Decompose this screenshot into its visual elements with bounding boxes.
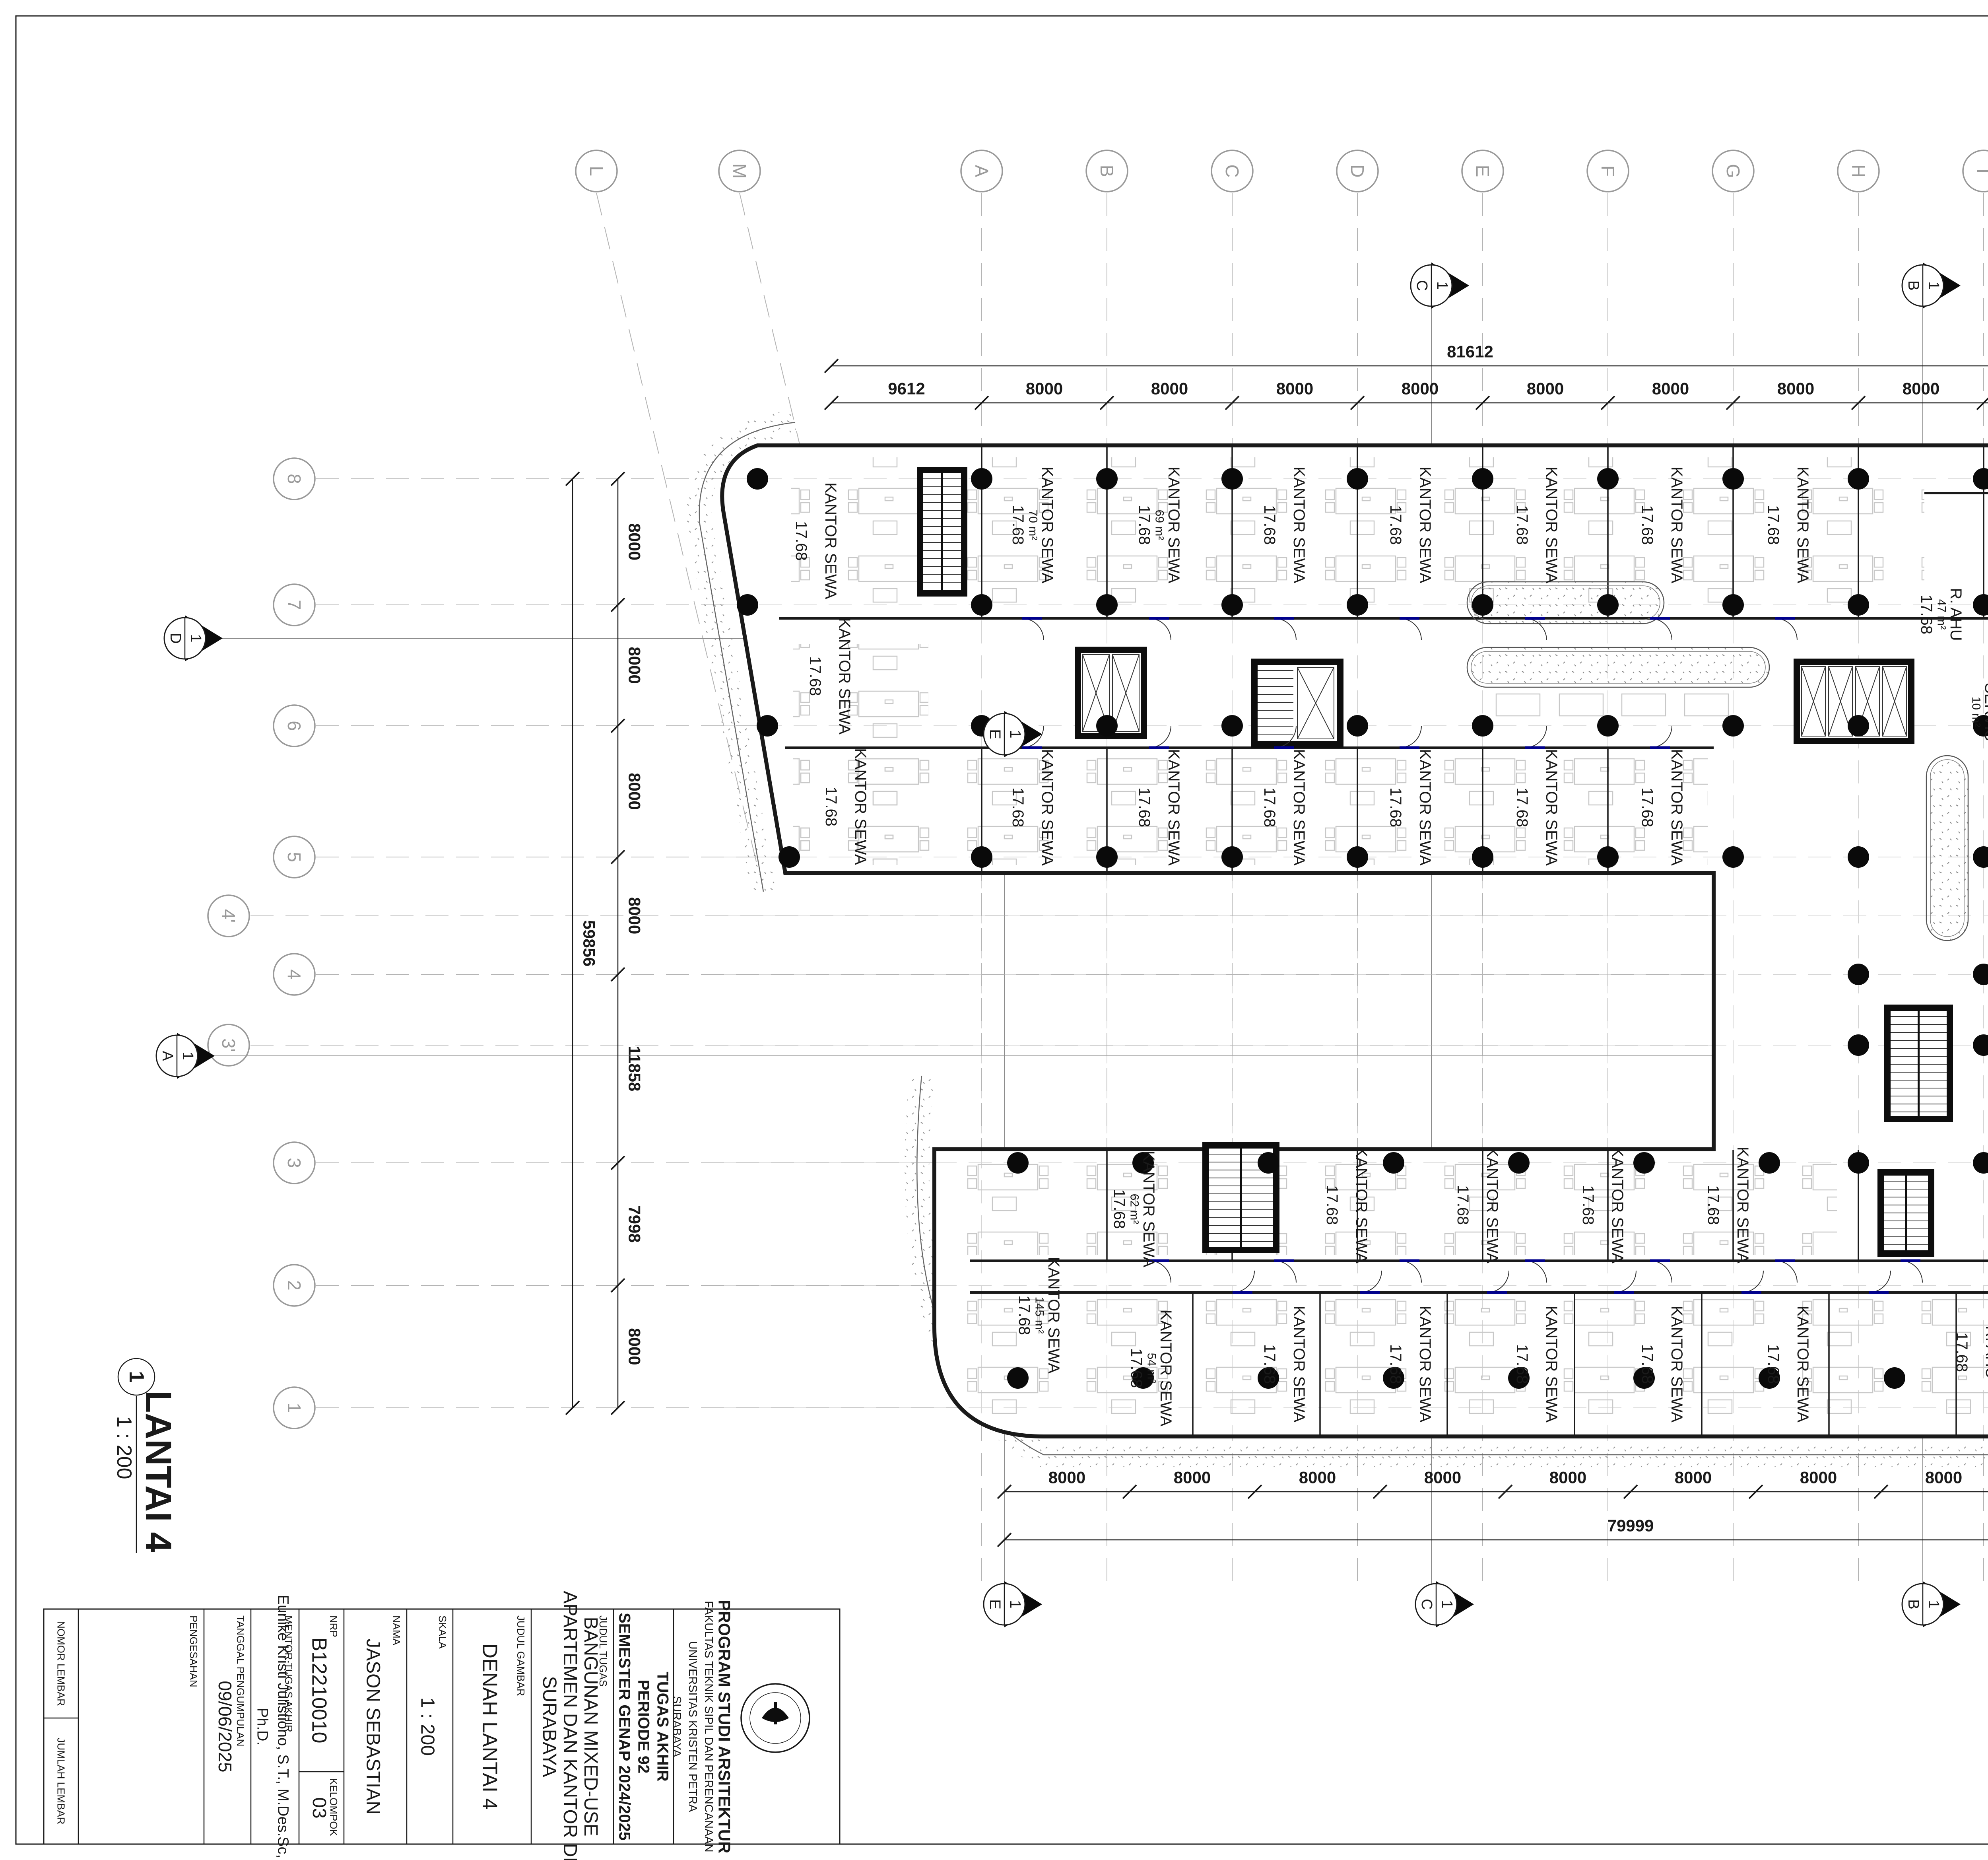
grid-letter: H [1848, 164, 1869, 177]
tb-value: TUGAS AKHIR [654, 1671, 672, 1781]
column [747, 468, 768, 490]
room-name: KANTOR SEWA [1734, 1147, 1751, 1263]
column [1472, 594, 1493, 616]
section-letter: C [1418, 1599, 1435, 1609]
room-level: 17.68 [1639, 505, 1656, 545]
dim-value: 7998 [625, 1205, 644, 1242]
room-level: 17.68 [1015, 1295, 1033, 1335]
dim-value: 8000 [625, 1328, 644, 1365]
door-threshold [1022, 617, 1042, 620]
column [737, 594, 758, 616]
room-level: 17.68 [1579, 1185, 1597, 1225]
column [1258, 1152, 1279, 1174]
column [1597, 715, 1619, 737]
column [1221, 715, 1243, 737]
room-level: 17.68 [792, 521, 810, 561]
column [1472, 468, 1493, 490]
drawing-sheet: LMABCDEFGHIJK87654'43'321KANTOR SEWA17.6… [0, 0, 1988, 1860]
tb-value: SEMESTER GENAP 2024/2025 [616, 1613, 633, 1841]
section-letter: C [1413, 280, 1430, 291]
door-threshold [1487, 1291, 1507, 1294]
tb-label: JUMLAH LEMBAR [55, 1738, 67, 1824]
room-name: KANTOR SEWA [1609, 1147, 1626, 1263]
column [1347, 846, 1368, 868]
dim-value: 8000 [1026, 379, 1063, 398]
furniture-zone [962, 1296, 1988, 1428]
column [1722, 468, 1744, 490]
column [1884, 1367, 1905, 1389]
grid-letter: B [1097, 165, 1117, 177]
door-threshold [1741, 1291, 1761, 1294]
dim-value: 8000 [1299, 1468, 1336, 1487]
dim-value: 8000 [1800, 1468, 1837, 1487]
room-name: KANTOR SEWA [1543, 1306, 1560, 1423]
grid-number: 3' [218, 1038, 239, 1052]
room-level: 17.68 [1953, 1332, 1971, 1372]
room-name: KANTOR SEWA [1140, 1151, 1157, 1267]
room-name: KANTOR SEWA [1157, 1310, 1175, 1427]
planter [1467, 582, 1664, 624]
tb-label: NAMA [390, 1615, 402, 1646]
room-level: 17.68 [1513, 787, 1531, 827]
room-name: KANTOR SEWA [1794, 466, 1811, 583]
room-level: 17.68 [1513, 505, 1531, 545]
room-name: KANTOR SEWA [836, 618, 853, 735]
dim-value: 8000 [1675, 1468, 1712, 1487]
dim-value: 11858 [625, 1046, 644, 1091]
room-level: 17.68 [1454, 1185, 1472, 1225]
column [1096, 715, 1118, 737]
dim-value-overall: 79999 [1607, 1516, 1654, 1535]
column [1347, 468, 1368, 490]
tb-label: NRP [328, 1615, 340, 1637]
column [1597, 594, 1619, 616]
grid-number: 6 [284, 721, 305, 731]
room-level: 17.68 [1513, 1344, 1531, 1384]
door-threshold [1400, 617, 1419, 620]
grid-number: 4 [284, 969, 305, 980]
column [1508, 1152, 1530, 1174]
column [1722, 594, 1744, 616]
column [1848, 1152, 1869, 1174]
dim-value: 8000 [1527, 379, 1564, 398]
column [1472, 846, 1493, 868]
grid-letter: A [971, 165, 992, 177]
room-level: 17.68 [1261, 1344, 1278, 1384]
tb-institution: UNIVERSITAS KRISTEN PETRA [686, 1641, 699, 1812]
column [1597, 846, 1619, 868]
tb-value: Eunike Kristi Julistiono, S.T., M.Des.Sc… [275, 1595, 291, 1858]
room-level: 17.68 [1639, 787, 1656, 827]
column [1096, 594, 1118, 616]
tb-institution: SURABAYA [670, 1696, 683, 1757]
tb-value: 1 : 200 [417, 1697, 438, 1756]
room-name: KANTOR SEWA [1543, 749, 1560, 866]
section-letter: A [159, 1051, 176, 1061]
column [1383, 1152, 1404, 1174]
dim-value: 8000 [1276, 379, 1313, 398]
tb-value: SURABAYA [539, 1676, 560, 1777]
room-name: KANTOR SEWA [1416, 466, 1434, 583]
column [1848, 468, 1869, 490]
grid-number: 1 [284, 1403, 305, 1413]
room-name: KANTOR SEWA [1416, 1306, 1434, 1423]
column [1347, 715, 1368, 737]
room-name: KANTOR SEWA [1039, 749, 1056, 866]
drawing-number: 1 [125, 1371, 148, 1383]
tb-label: NOMOR LEMBAR [55, 1621, 67, 1706]
tb-value: 09/06/2025 [215, 1681, 235, 1772]
section-letter: D [167, 633, 184, 643]
column [1848, 594, 1869, 616]
section-number: 1 [187, 634, 204, 642]
room-name: KANTOR SEWA [1290, 749, 1308, 866]
dim-value: 8000 [625, 523, 644, 560]
furniture-zone [797, 754, 1708, 865]
room-name: KANTOR SEWA [1165, 466, 1182, 583]
room-name: KANTOR SEWA [1543, 466, 1560, 583]
column [1633, 1152, 1655, 1174]
room-area: 70 m² [1027, 510, 1040, 540]
section-letter: E [986, 1599, 1003, 1609]
tb-value: BANGUNAN MIXED-USE [580, 1617, 601, 1836]
section-number: 1 [1925, 281, 1942, 290]
tb-value: APARTEMEN DAN KANTOR DI [559, 1591, 580, 1860]
planter [1926, 756, 1968, 941]
section-number: 1 [1434, 281, 1450, 290]
floor-plan-canvas: LMABCDEFGHIJK87654'43'321KANTOR SEWA17.6… [0, 0, 1988, 1860]
door-threshold [1650, 1259, 1670, 1262]
column [1007, 1152, 1029, 1174]
section-number: 1 [179, 1051, 196, 1060]
sheet-border [16, 16, 1988, 1844]
tb-value: DENAH LANTAI 4 [478, 1643, 501, 1809]
column [971, 594, 992, 616]
column [1848, 715, 1869, 737]
room-level: 17.68 [822, 787, 840, 826]
grid-number: 4' [218, 909, 239, 923]
door-threshold [1901, 1259, 1920, 1262]
planter [1467, 647, 1769, 687]
grid-letter: G [1723, 164, 1743, 178]
room-area: 47 m² [1935, 599, 1948, 630]
column [971, 468, 992, 490]
column [1472, 715, 1493, 737]
column [1722, 715, 1744, 737]
room-level: 17.68 [1639, 1344, 1656, 1384]
section-number: 1 [1439, 1600, 1455, 1608]
room-level: 17.68 [1705, 1185, 1722, 1225]
room-level: 17.68 [1261, 505, 1278, 545]
column [1007, 1367, 1029, 1389]
room-level: 17.68 [1009, 787, 1027, 827]
column [1848, 964, 1869, 985]
column [757, 715, 778, 737]
room-level: 17.68 [1918, 595, 1935, 634]
room-name: KANTOR SEWA [1416, 749, 1434, 866]
room-level: 17.68 [806, 656, 824, 696]
grid-number: 3 [284, 1158, 305, 1168]
room-name: KANTOR SEWA [1290, 466, 1308, 583]
room-name: KANTOR SEWA [1165, 749, 1182, 866]
room-name: KANTOR SEWA [1290, 1306, 1308, 1423]
door-threshold [1274, 1259, 1294, 1262]
sheet-title-block: NOMOR LEMBARJUMLAH LEMBARPENGESAHANTANGG… [44, 1591, 840, 1860]
room-name: KANTOR SEWA [1353, 1147, 1370, 1263]
door-threshold [1869, 1291, 1889, 1294]
column [1848, 1034, 1869, 1056]
room-name: KANTOR SEWA [1668, 749, 1685, 866]
tb-label: PENGESAHAN [188, 1615, 200, 1687]
room-name: KANTOR SEWA [852, 748, 869, 865]
grid-number: 7 [284, 600, 305, 610]
dim-value: 8000 [1652, 379, 1689, 398]
section-letter: E [986, 729, 1003, 739]
room-name: R. AHU [1982, 1326, 1988, 1378]
tb-label: TANGGAL PENGUMPULAN [235, 1615, 247, 1746]
room-name: KANTOR SEWA [1039, 466, 1056, 583]
tb-value: 03 [309, 1797, 330, 1818]
dim-value: 8000 [1151, 379, 1188, 398]
door-threshold [1274, 617, 1294, 620]
grid-letter: E [1472, 165, 1493, 177]
drawing-scale: 1 : 200 [113, 1416, 136, 1479]
door-threshold [1233, 1291, 1252, 1294]
column [1096, 468, 1118, 490]
room-level: 17.68 [1110, 1189, 1128, 1229]
dim-value: 8000 [625, 647, 644, 684]
room-name: KANTOR SEWA [1794, 1306, 1811, 1423]
column [1722, 846, 1744, 868]
door-threshold [1614, 1291, 1634, 1294]
room-area: 10 m² [1970, 697, 1983, 727]
door-threshold [1525, 1259, 1545, 1262]
tb-value: PERIODE 92 [635, 1680, 652, 1774]
grid-letter: M [729, 163, 750, 179]
room-level: 17.68 [1387, 505, 1404, 545]
dim-value-overall: 81612 [1447, 342, 1493, 361]
door-threshold [1650, 746, 1670, 749]
column [971, 846, 992, 868]
tb-value: B12210010 [308, 1637, 331, 1743]
door-threshold [1149, 617, 1169, 620]
room-area: 54 m² [1145, 1353, 1158, 1384]
column [1096, 846, 1118, 868]
tb-label: SKALA [437, 1615, 448, 1649]
door-threshold [1525, 617, 1545, 620]
section-number: 1 [1007, 730, 1023, 738]
room-name: R. AHU [1947, 588, 1965, 641]
room-name: KANTOR SEWA [1483, 1147, 1501, 1263]
column [779, 846, 800, 868]
dim-value: 8000 [625, 897, 644, 934]
dim-value: 8000 [1174, 1468, 1211, 1487]
drawing-title-block: 1LANTAI 41 : 200 [113, 1359, 179, 1553]
drawing-title: LANTAI 4 [138, 1390, 179, 1552]
room-name: KANTOR SEWA [1668, 1306, 1685, 1423]
room-level: 17.68 [1128, 1348, 1145, 1388]
grid-number: 2 [284, 1280, 305, 1291]
tb-institution: FAKULTAS TEKNIK SIPIL DAN PERENCANAAN [702, 1601, 715, 1852]
column [1221, 846, 1243, 868]
dim-value: 8000 [1925, 1468, 1962, 1487]
grid-letter: L [586, 166, 607, 176]
room-area: 145 m² [1033, 1296, 1046, 1333]
dim-value: 9612 [888, 379, 925, 398]
room-area: 69 m² [1153, 510, 1166, 540]
section-letter: B [1905, 1599, 1922, 1609]
dim-value: 8000 [1903, 379, 1939, 398]
dim-value: 8000 [1048, 1468, 1085, 1487]
tb-label: JUDUL GAMBAR [515, 1615, 527, 1696]
dim-value: 8000 [1549, 1468, 1586, 1487]
door-threshold [1360, 1291, 1380, 1294]
grid-number: 8 [284, 474, 305, 484]
room-name: KANTOR SEWA [822, 482, 839, 599]
room-level: 17.68 [1387, 1344, 1404, 1384]
grid-letter: I [1973, 169, 1988, 174]
room-area: 62 m² [1128, 1194, 1141, 1224]
door-threshold [1525, 746, 1545, 749]
room-level: 17.68 [1009, 505, 1027, 545]
room-level: 17.68 [1387, 787, 1404, 827]
section-number: 1 [1925, 1600, 1942, 1608]
room-level: 17.68 [1136, 787, 1153, 827]
room-level: 17.68 [1261, 787, 1278, 827]
tb-institution: PROGRAM STUDI ARSITEKTUR [715, 1600, 734, 1854]
tb-value: JASON SEBASTIAN [363, 1638, 384, 1815]
dim-value-overall: 59856 [580, 920, 599, 967]
grid-letter: C [1222, 164, 1242, 177]
column [1597, 468, 1619, 490]
room-level: 17.68 [1323, 1185, 1341, 1225]
dim-value: 8000 [1402, 379, 1439, 398]
tb-value: Ph.D. [254, 1708, 271, 1745]
grid-number: 5 [284, 852, 305, 862]
grid-letter: F [1598, 165, 1618, 177]
room-level: 17.68 [1765, 1344, 1782, 1384]
room-name: KANTOR SEWA [1668, 466, 1685, 583]
room-name: KANTOR SEWA [1045, 1257, 1062, 1374]
column [1221, 594, 1243, 616]
dim-value: 8000 [1777, 379, 1814, 398]
dim-value: 8000 [1424, 1468, 1461, 1487]
column [1221, 468, 1243, 490]
dim-value: 8000 [625, 773, 644, 810]
section-number: 1 [1007, 1600, 1023, 1608]
door-threshold [1400, 1259, 1419, 1262]
door-threshold [1650, 617, 1670, 620]
room-level: 17.68 [1765, 505, 1782, 545]
door-threshold [1775, 617, 1795, 620]
grid-letter: D [1347, 164, 1368, 177]
room-level: 17.68 [1136, 505, 1153, 545]
section-letter: B [1905, 280, 1922, 290]
door-threshold [1775, 1259, 1795, 1262]
column [1848, 846, 1869, 868]
column [1347, 594, 1368, 616]
column [1759, 1152, 1780, 1174]
